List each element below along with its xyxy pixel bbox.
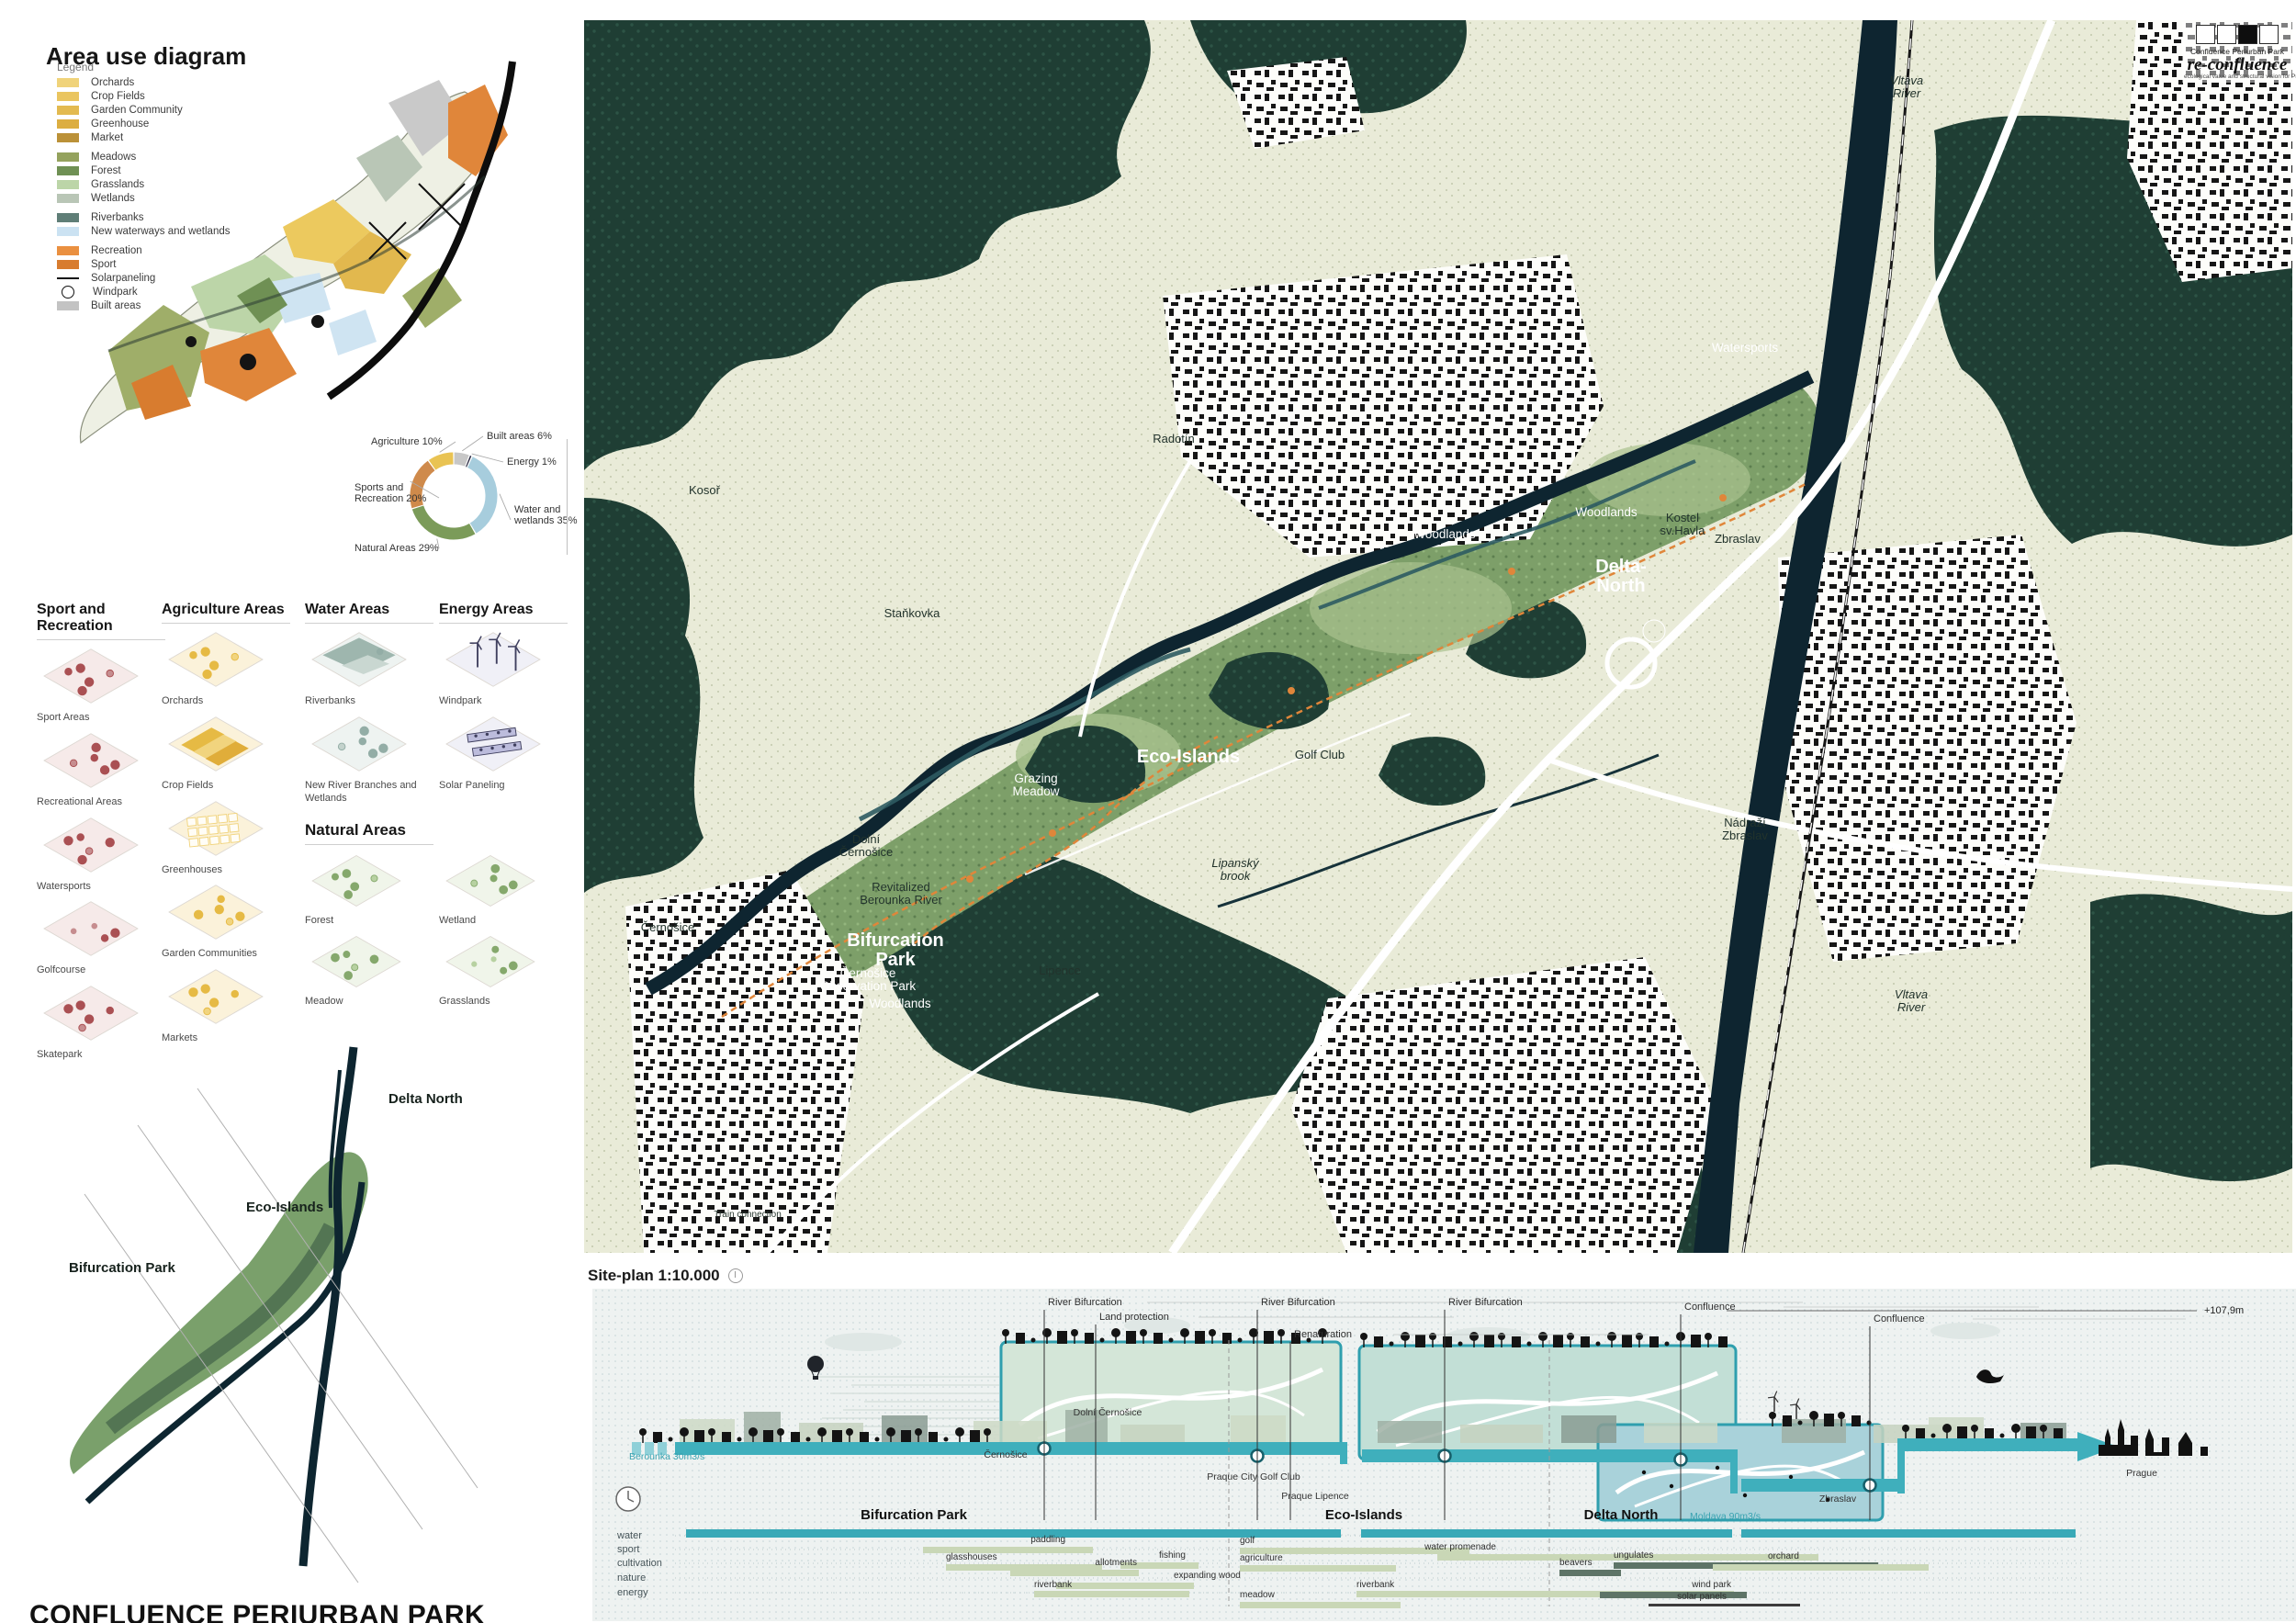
donut-segment [433, 458, 454, 465]
river-band [1741, 1479, 1901, 1492]
gantt-bar-label: beavers [1559, 1558, 1593, 1568]
typology-cell-label: Windpark [439, 695, 563, 708]
gantt-bar [1649, 1604, 1800, 1606]
section-annotation: Confluence [1684, 1302, 1736, 1313]
donut-label: Built areas 6% [487, 431, 552, 442]
agri-tile-icon [162, 882, 270, 942]
typology-cell-label: Garden Communities [162, 948, 286, 961]
map-label: Lipence [1039, 964, 1081, 977]
sport-tile-icon [37, 898, 145, 959]
gantt-water-bar [1361, 1529, 1732, 1538]
typology-cell-label: Riverbanks [305, 695, 429, 708]
energy-tile-icon [439, 714, 547, 774]
typology-cell-label: Recreational Areas [37, 796, 161, 809]
overview-map: Delta NorthEco-IslandsBifurcation Park [28, 1033, 560, 1584]
donut-segment [468, 461, 469, 462]
typology-cell: Garden Communities [162, 882, 301, 961]
gantt-bar [1056, 1583, 1194, 1589]
agri-tile-icon [162, 966, 270, 1027]
section-annotation: Land protection [1099, 1312, 1169, 1323]
typology-cell: Greenhouses [162, 798, 301, 877]
typology-cell: Watersports [37, 815, 176, 894]
donut-segment [455, 458, 467, 461]
column-header: Agriculture Areas [162, 602, 290, 624]
typology-cell: Orchards [162, 629, 301, 708]
agri-tile-icon [162, 714, 270, 774]
section-annotation: River Bifurcation [1448, 1297, 1523, 1308]
gantt-bar-label: agriculture [1240, 1553, 1283, 1563]
natural-grid: ForestWetlandMeadowGrasslands [305, 852, 580, 1014]
section-area-header: Delta North [1584, 1507, 1659, 1523]
section-annotation: River Bifurcation [1048, 1297, 1122, 1308]
gantt-bar-label: solar panels [1677, 1592, 1727, 1602]
map-label: Delta-North [1595, 557, 1647, 596]
typology-cell: Grasslands [439, 933, 573, 1009]
donut-label: Natural Areas 29% [355, 543, 439, 554]
column-header: Natural Areas [305, 821, 433, 845]
typology-cell-label: Wetland [439, 915, 563, 928]
donut-segment [418, 508, 472, 534]
typology-cell: New River Branches and Wetlands [305, 714, 445, 806]
map-label: GrazingMeadow [1012, 772, 1059, 798]
typology-column: Agriculture AreasOrchardsCrop FieldsGree… [162, 602, 301, 1051]
gantt-bar [1713, 1564, 1929, 1571]
map-label: Watersports [1712, 341, 1779, 355]
logo: Confluence Periurban Park re-confluence … [2182, 22, 2292, 83]
typology-cell-label: Orchards [162, 695, 286, 708]
section-place-label: Zbraslav [1819, 1493, 1857, 1505]
gantt-bar-label: paddling [1030, 1535, 1065, 1545]
gantt-bar-label: wind park [1691, 1580, 1732, 1590]
map-label: Woodlands [869, 997, 931, 1010]
typology-cell: Recreational Areas [37, 730, 176, 809]
typology-cell: Wetland [439, 852, 573, 928]
map-label: Woodlands [1575, 505, 1638, 519]
overview-area-label: Bifurcation Park [69, 1260, 176, 1276]
gantt-bar-label: riverbank [1356, 1580, 1395, 1590]
typology-cell-label: Golfcourse [37, 964, 161, 977]
section-annotation: Confluence [1874, 1313, 1925, 1324]
column-header: Water Areas [305, 602, 433, 624]
map-label: NádražíZbraslav [1722, 816, 1768, 842]
flow-rate-label: Moldava 90m3/s [1690, 1511, 1761, 1522]
gantt-bar-label: golf [1240, 1536, 1255, 1546]
overview-area-label: Eco-Islands [246, 1200, 323, 1215]
typology-column: Energy AreasWindparkSolar Paneling [439, 602, 579, 798]
map-label: Staňkovka [884, 606, 940, 620]
typology-cell-label: Meadow [305, 996, 429, 1009]
typology-cell-label: Crop Fields [162, 780, 286, 793]
natural-areas-section: Natural AreasForestWetlandMeadowGrasslan… [305, 821, 580, 1014]
typology-cell: Golfcourse [37, 898, 176, 977]
donut-leader [462, 436, 483, 451]
gantt-bar-label: water promenade [1424, 1542, 1496, 1552]
map-label: Zbraslav [1715, 532, 1761, 546]
section-diagram: +107,9mRiver BifurcationLand protectionR… [588, 1289, 2296, 1621]
section-area-header: Eco-Islands [1325, 1507, 1402, 1523]
map-label: Kostelsv.Havla [1660, 511, 1706, 537]
map-label: Radotín [1153, 432, 1195, 445]
typology-cell: Crop Fields [162, 714, 301, 793]
gantt-bar-label: ungulates [1614, 1550, 1653, 1561]
column-header: Energy Areas [439, 602, 568, 624]
donut-label: Energy 1% [507, 456, 557, 468]
gantt-row-label: water [616, 1530, 642, 1541]
section-place-label: Dolní Černošice [1074, 1406, 1142, 1418]
donut-label: Agriculture 10% [371, 436, 443, 447]
river-band [1901, 1438, 2077, 1451]
gantt-bar [1010, 1570, 1139, 1576]
logo-squares-icon [2184, 25, 2290, 44]
gantt-water-bar [1741, 1529, 2076, 1538]
water-tile-icon [305, 714, 413, 774]
water-tile-icon [305, 629, 413, 690]
section-annotation: Renaturation [1294, 1329, 1352, 1340]
section-place-label: Černošice [984, 1448, 1027, 1460]
gantt-bar-label: glasshouses [946, 1552, 997, 1562]
section-area-header: Bifurcation Park [861, 1507, 968, 1523]
typology-cell: Solar Paneling [439, 714, 579, 793]
map-label: Woodlands [1413, 527, 1476, 541]
donut-leader [500, 494, 511, 520]
map-label: VltavaRiver [1895, 987, 1928, 1014]
natural-tile-icon [439, 933, 542, 990]
typology-cell: Meadow [305, 933, 439, 1009]
natural-tile-icon [439, 852, 542, 909]
gantt-row-label: nature [617, 1572, 646, 1584]
sport-tile-icon [37, 730, 145, 791]
logo-name: re-confluence [2184, 56, 2290, 73]
gantt-bar [1034, 1591, 1189, 1597]
map-label: Golf Club [1295, 748, 1345, 761]
typology-cell: Windpark [439, 629, 579, 708]
site-plan-map: VltavaRiverWatersportsRadotínKosořWoodla… [584, 20, 2292, 1253]
column-header: Sport and Recreation [37, 602, 165, 640]
poster: Area use diagram Legend OrchardsCrop Fie… [0, 0, 2296, 1623]
typology-column: Sport and RecreationSport AreasRecreatio… [37, 602, 176, 1067]
typology-cell: Forest [305, 852, 439, 928]
agri-tile-icon [162, 798, 270, 859]
site-plan-caption: Site-plan 1:10.000 [588, 1267, 720, 1285]
agri-tile-icon [162, 629, 270, 690]
gantt-bar-label: fishing [1159, 1550, 1186, 1561]
energy-tile-icon [439, 629, 547, 690]
gantt-bar [1559, 1570, 1621, 1576]
land-use-donut-chart: Built areas 6%Energy 1%Water andwetlands… [351, 423, 580, 562]
sport-tile-icon [37, 646, 145, 706]
typology-cell: Riverbanks [305, 629, 445, 708]
gantt-bar-label: expanding wood [1174, 1571, 1241, 1581]
map-label: Kosoř [689, 483, 721, 497]
cloud-icon [825, 1333, 902, 1351]
gantt-row-label: cultivation [617, 1558, 662, 1569]
section-annotation: River Bifurcation [1261, 1297, 1335, 1308]
sport-tile-icon [37, 815, 145, 875]
map-label: Černošice [641, 920, 695, 934]
gantt-bar [1240, 1602, 1401, 1608]
balloon-icon [807, 1356, 824, 1372]
poster-title: CONFLUENCE PERIURBAN PARK [29, 1600, 485, 1623]
gantt-bar-label: meadow [1240, 1590, 1276, 1600]
natural-tile-icon [305, 933, 408, 990]
section-place-label: Praque Lipence [1281, 1491, 1349, 1502]
gantt-bar-label: riverbank [1034, 1580, 1073, 1590]
north-arrow-icon [728, 1268, 743, 1283]
typology-column: Water AreasRiverbanksNew River Branches … [305, 602, 445, 810]
map-label: Train connection [714, 1210, 782, 1220]
typology-cell: Sport Areas [37, 646, 176, 725]
overview-area-label: Delta North [388, 1091, 463, 1107]
typology-cell-label: Grasslands [439, 996, 563, 1009]
site-plan-caption-row: Site-plan 1:10.000 [588, 1267, 743, 1285]
donut-label: Water andwetlands 35% [513, 504, 578, 526]
flow-rate-label: Berounka 30m3/s [629, 1451, 704, 1462]
typology-cell-label: New River Branches and Wetlands [305, 780, 429, 806]
map-label: VltavaRiver [1890, 73, 1923, 100]
gantt-bar [1240, 1565, 1396, 1572]
typology-cell-label: Solar Paneling [439, 780, 563, 793]
gantt-row-label: sport [617, 1544, 639, 1555]
cloud-icon [1930, 1323, 2000, 1339]
donut-segment [470, 462, 491, 528]
gantt-row-label: energy [617, 1587, 648, 1598]
typology-cell-label: Watersports [37, 881, 161, 894]
typology-cell-label: Greenhouses [162, 864, 286, 877]
logo-tagline: ecological value and structural vision f… [2184, 73, 2290, 80]
section-place-label: Praque City Golf Club [1207, 1471, 1300, 1482]
natural-tile-icon [305, 852, 408, 909]
divider [567, 439, 568, 555]
gantt-bar-label: orchard [1768, 1551, 1799, 1561]
section-place-label: Prague [2126, 1468, 2157, 1479]
typology-cell-label: Sport Areas [37, 712, 161, 725]
area-use-map [53, 48, 549, 470]
elevation-label: +107,9m [2204, 1305, 2244, 1316]
map-label: Eco-Islands [1137, 747, 1240, 767]
gantt-bar-label: allotments [1095, 1558, 1137, 1568]
gantt-bar [946, 1564, 1102, 1571]
typology-cell-label: Forest [305, 915, 429, 928]
